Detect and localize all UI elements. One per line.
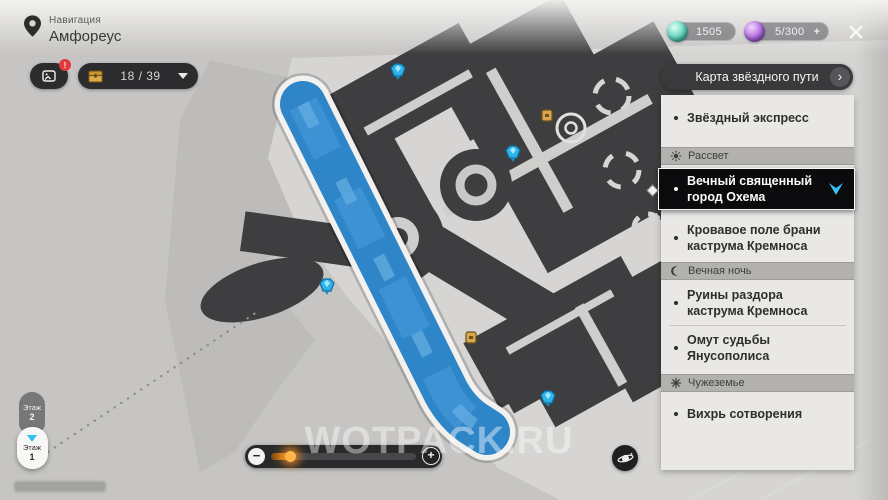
panel-title-button[interactable]: Карта звёздного пути ›	[661, 64, 853, 90]
chest-marker-icon[interactable]	[466, 332, 476, 343]
slider-knob[interactable]	[285, 451, 296, 462]
currency-purple[interactable]: 5/300 +	[745, 22, 829, 41]
section-label: Вечная ночь	[688, 265, 751, 277]
zoom-in-button[interactable]: +	[422, 447, 440, 465]
planet-view-button[interactable]	[612, 445, 638, 471]
planet-view-icon	[617, 452, 634, 465]
item-bullet	[674, 412, 678, 416]
floor-1-button[interactable]: Этаж 1	[17, 427, 48, 469]
nav-label: Навигация	[49, 15, 121, 26]
item-bullet	[674, 116, 678, 120]
floor-1-value: 1	[29, 452, 34, 462]
zoom-slider[interactable]: − +	[245, 445, 442, 468]
purple-orb-icon	[744, 21, 765, 42]
item-label: Вихрь сотворения	[687, 406, 802, 422]
section-label: Рассвет	[688, 150, 729, 162]
item-bullet	[674, 301, 678, 305]
close-icon	[847, 23, 865, 41]
item-label-line1: Омут судьбы	[687, 333, 770, 347]
location-list-panel: Звёздный экспресс Рассвет Вечный священн…	[661, 95, 854, 470]
location-name: Амфореус	[49, 28, 121, 45]
floor-2-button[interactable]: Этаж 2	[19, 392, 45, 432]
gallery-icon	[42, 70, 56, 82]
navigation-header: Навигация Амфореус	[24, 15, 121, 45]
location-pin-icon	[24, 15, 41, 37]
gallery-button[interactable]: !	[30, 63, 68, 89]
item-label-line1: Вечный священный	[687, 174, 812, 188]
chevron-right-icon: ›	[830, 67, 850, 87]
panel-title: Карта звёздного пути	[695, 70, 818, 84]
section-label: Чужеземье	[688, 377, 745, 389]
section-header-eternal-night: Вечная ночь	[661, 262, 854, 280]
item-label-line1: Руины раздора	[687, 288, 783, 302]
chest-marker-icon[interactable]	[542, 110, 552, 121]
floor-2-label: Этаж	[23, 403, 41, 412]
caret-down-icon	[178, 73, 188, 79]
sun-icon	[670, 150, 682, 162]
star-icon	[670, 377, 682, 389]
chest-counter-dropdown[interactable]: 18 / 39	[78, 63, 198, 89]
add-currency-button[interactable]: +	[814, 26, 820, 38]
currency-teal[interactable]: 1505	[668, 22, 736, 41]
close-button[interactable]	[845, 21, 867, 43]
section-header-otherworld: Чужеземье	[661, 374, 854, 392]
teal-orb-icon	[667, 21, 688, 42]
item-label: Звёздный экспресс	[687, 110, 809, 126]
item-bullet	[674, 346, 678, 350]
item-label-line2: город Охема	[687, 190, 765, 204]
teleport-arrow-icon	[828, 183, 844, 196]
list-divider	[669, 325, 846, 326]
currency-teal-value: 1505	[691, 26, 727, 38]
item-bullet	[674, 236, 678, 240]
section-header-dawn: Рассвет	[661, 147, 854, 165]
arrow-down-icon	[27, 435, 37, 442]
item-label-line2: каструма Кремноса	[687, 304, 807, 318]
list-item-okhema-selected[interactable]: Вечный священный город Охема	[658, 168, 855, 210]
partial-hint-bar	[14, 481, 106, 492]
map-screen: Навигация Амфореус ! 18 / 39 1505 5/300 …	[0, 0, 888, 500]
floor-2-value: 2	[29, 412, 34, 422]
moon-icon	[670, 265, 682, 277]
list-item-vortex-creation[interactable]: Вихрь сотворения	[661, 398, 854, 430]
zoom-out-button[interactable]: −	[248, 448, 265, 465]
zoom-slider-track[interactable]	[271, 453, 416, 460]
item-bullet	[674, 187, 678, 191]
chest-count-value: 18 / 39	[110, 69, 171, 83]
list-item-bloody-field[interactable]: Кровавое поле брани каструма Кремноса	[661, 219, 854, 257]
item-label-line2: Янусополиса	[687, 349, 769, 363]
floor-1-label: Этаж	[23, 443, 41, 452]
list-item-ruins-discord[interactable]: Руины раздора каструма Кремноса	[661, 284, 854, 322]
floor-selector: Этаж 2 Этаж 1	[16, 392, 48, 469]
list-item-star-express[interactable]: Звёздный экспресс	[661, 101, 854, 135]
notification-badge: !	[59, 59, 71, 71]
chest-icon	[88, 70, 103, 83]
item-label-line2: каструма Кремноса	[687, 239, 807, 253]
currency-purple-value: 5/300	[768, 26, 812, 38]
item-label-line1: Кровавое поле брани	[687, 223, 821, 237]
list-item-pool-of-fate[interactable]: Омут судьбы Янусополиса	[661, 329, 854, 367]
